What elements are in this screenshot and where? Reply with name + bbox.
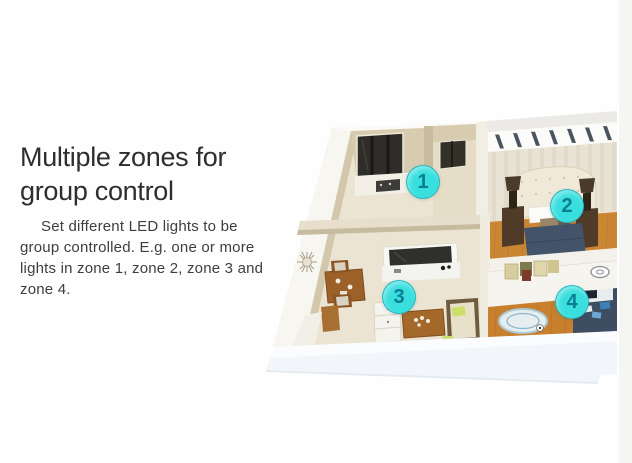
entry-hall	[433, 121, 488, 228]
round-rug	[499, 309, 547, 333]
sunburst-mirror	[297, 252, 317, 272]
kitchen-window	[357, 133, 403, 178]
floorplan-illustration: 1 2 3 4	[0, 0, 632, 463]
zone-marker-label: 2	[561, 195, 572, 218]
page: Multiple zones for group control Set dif…	[0, 0, 632, 463]
study-room	[488, 260, 617, 338]
zone-marker-label: 4	[566, 291, 577, 314]
zone-marker-1: 1	[406, 165, 440, 199]
wall-oval-decor	[591, 267, 609, 278]
media-counter	[382, 243, 460, 282]
zone-marker-label: 1	[417, 171, 428, 194]
floorplan-svg	[0, 0, 632, 463]
bedroom-room	[486, 111, 617, 260]
zone-marker-label: 3	[393, 286, 404, 309]
zone-marker-4: 4	[555, 285, 589, 319]
corridor-wall	[476, 121, 488, 228]
zone-marker-2: 2	[550, 189, 584, 223]
zone-marker-3: 3	[382, 280, 416, 314]
entry-door	[440, 140, 466, 169]
coffee-table	[402, 309, 445, 338]
